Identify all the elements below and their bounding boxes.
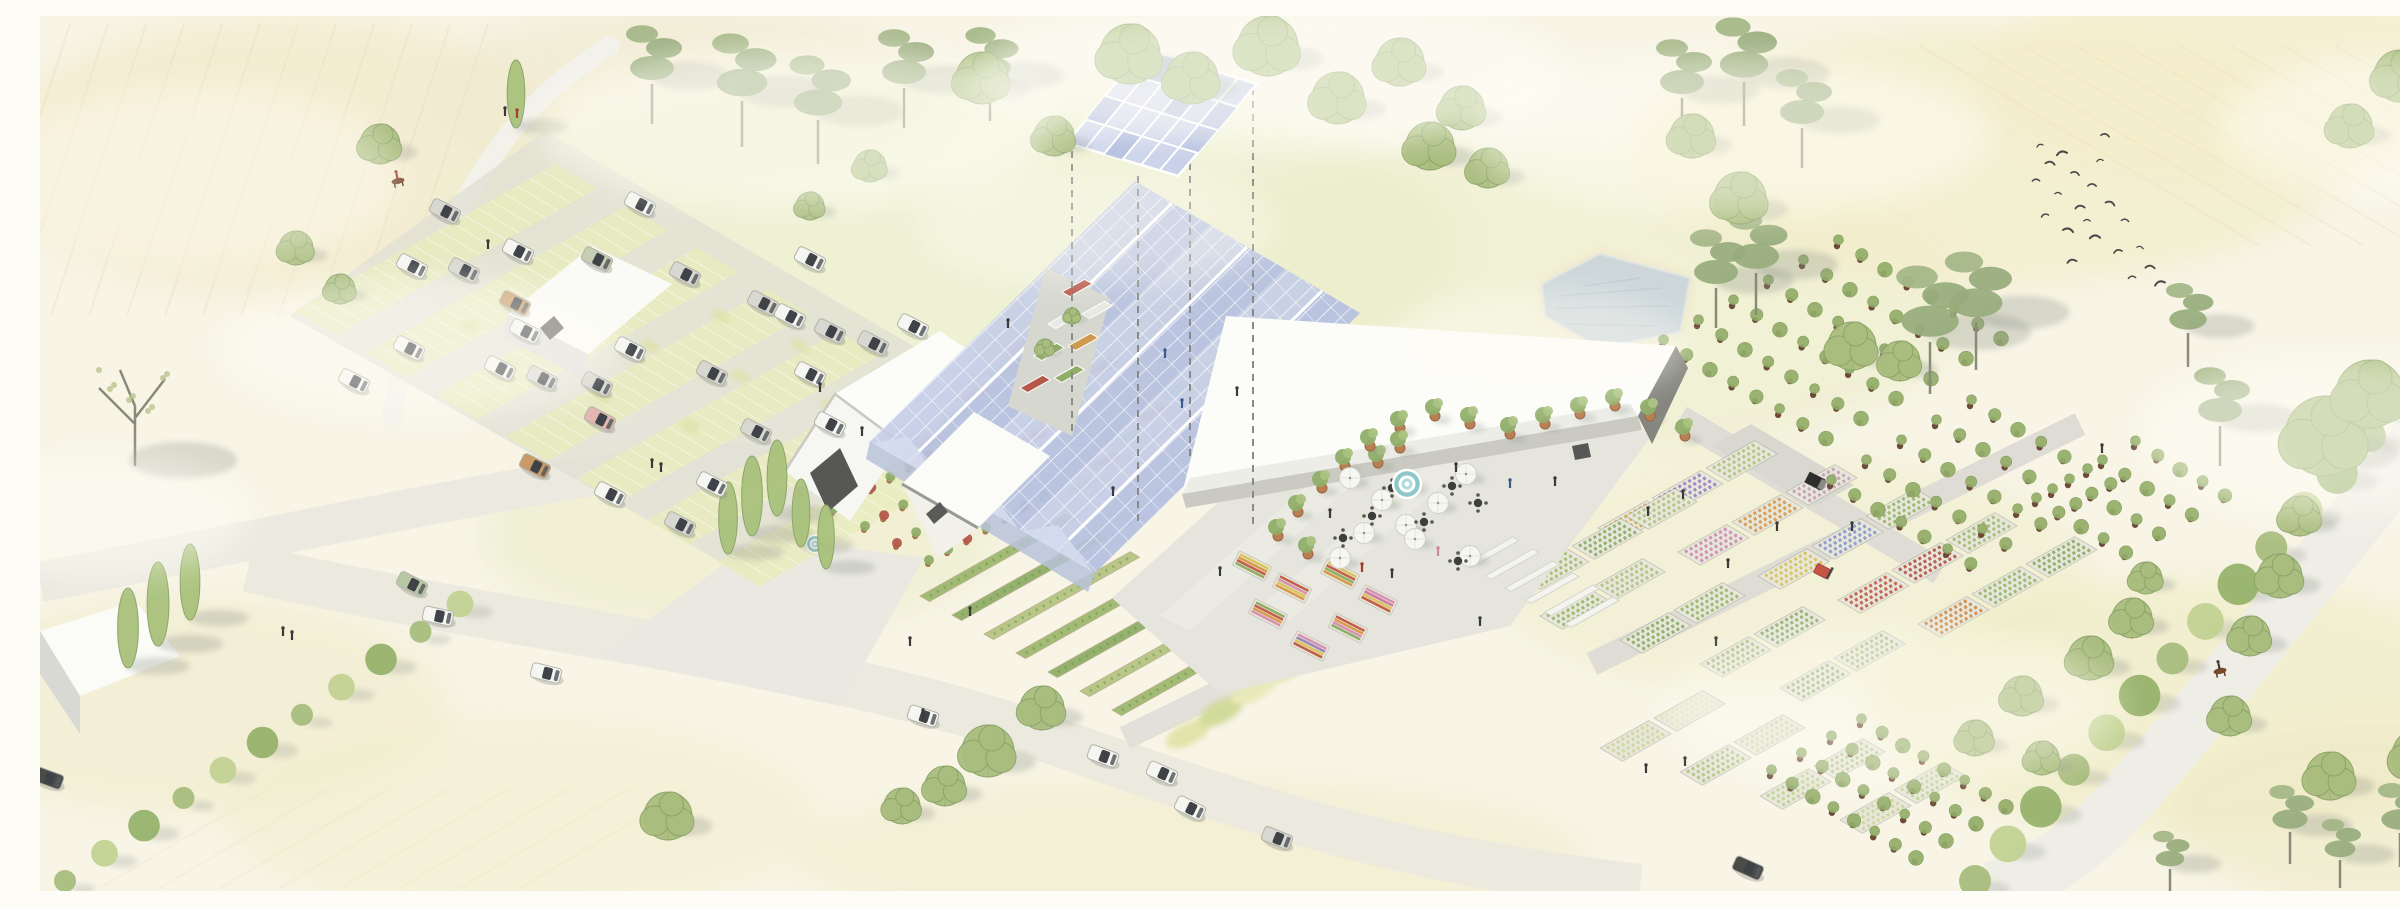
potted-shrub <box>2011 422 2026 437</box>
pine-foliage <box>2272 810 2307 829</box>
potted-shrub <box>1909 850 1924 865</box>
person-head <box>1683 756 1686 759</box>
hedge-bush <box>291 704 313 726</box>
deciduous-tree <box>1969 720 1987 738</box>
cafe-chair <box>1382 486 1386 490</box>
potted-shrub <box>1890 310 1904 324</box>
pine-foliage <box>2269 785 2295 799</box>
potted-shrub <box>2098 455 2108 465</box>
potted-shrub <box>1939 833 1954 848</box>
poplar-tree <box>818 505 835 569</box>
potted-shrub <box>2140 481 2155 496</box>
potted-shrub <box>1949 804 1961 816</box>
planter-tree-foliage <box>1613 388 1623 398</box>
potted-shrub <box>1876 726 1888 738</box>
pine-foliage <box>878 29 910 47</box>
deciduous-tree <box>1034 686 1056 708</box>
potted-shrub <box>2070 497 2082 509</box>
potted-shrub <box>1827 731 1837 741</box>
person-head <box>1553 476 1556 479</box>
potted-plant <box>898 499 908 509</box>
potted-shrub <box>2107 500 2122 515</box>
parasol-pole <box>1414 538 1417 541</box>
deciduous-tree <box>1684 114 1706 136</box>
potted-shrub <box>1969 816 1984 831</box>
potted-shrub <box>1856 249 1868 261</box>
east-hall-door <box>1572 443 1591 460</box>
hedge-bush <box>410 621 432 643</box>
parasol-pole <box>1465 473 1468 476</box>
potted-shrub <box>1918 530 1932 544</box>
potted-shrub <box>1871 502 1886 517</box>
cafe-table <box>1368 512 1376 520</box>
deciduous-tree <box>373 124 393 144</box>
potted-shrub <box>1786 289 1798 301</box>
potted-shrub <box>1834 235 1844 245</box>
potted-shrub <box>1965 557 1977 569</box>
cafe-chair <box>1370 522 1374 526</box>
potted-shrub <box>1846 743 1858 755</box>
pine-foliage <box>717 69 768 97</box>
cafe-chair <box>1476 509 1480 513</box>
potted-shrub <box>2152 527 2166 541</box>
deciduous-tree <box>2322 752 2346 776</box>
pine-foliage <box>2156 851 2185 867</box>
planter-tree-foliage <box>1368 428 1378 438</box>
cafe-chair <box>1468 501 1472 505</box>
potted-shrub <box>1966 476 1977 487</box>
potted-shrub <box>1889 838 1901 850</box>
deciduous-tree <box>1731 172 1757 198</box>
parasol <box>1330 548 1351 569</box>
cafe-chair <box>1414 520 1418 524</box>
planter-tree-foliage <box>1683 418 1693 428</box>
cafe-chair <box>1458 484 1462 488</box>
cafe-chair <box>1430 520 1434 524</box>
bare-tree-leaves <box>126 397 132 403</box>
hedge-bush <box>328 674 355 701</box>
potted-shrub <box>1703 362 1718 377</box>
potted-shrub <box>1827 475 1837 485</box>
potted-shrub <box>2152 449 2164 461</box>
person-head <box>1646 506 1649 509</box>
person-head <box>1850 521 1853 524</box>
person-head <box>1681 489 1684 492</box>
planter-tree-foliage <box>1468 406 1478 416</box>
deciduous-tree <box>2015 676 2035 696</box>
deciduous-tree <box>1422 122 1446 146</box>
deciduous-tree <box>864 150 880 166</box>
parasol-pole <box>1349 477 1352 480</box>
hedge-bush <box>2187 603 2224 640</box>
hedge-bush <box>2218 564 2260 606</box>
bare-tree-leaves <box>96 367 102 373</box>
pine-foliage <box>1896 266 1938 289</box>
pine-foliage <box>2325 840 2356 857</box>
parasol <box>1456 464 1477 485</box>
cafe-chair <box>1442 484 1446 488</box>
deciduous-tree <box>1893 341 1913 361</box>
potted-shrub <box>1728 376 1739 387</box>
tree-shadow <box>726 544 784 560</box>
potted-shrub <box>1750 390 1764 404</box>
potted-shrub <box>1868 296 1879 307</box>
deciduous-tree <box>1042 339 1051 348</box>
person-head <box>650 458 653 461</box>
pine-foliage <box>794 89 842 115</box>
cafe-table <box>1448 482 1456 490</box>
pine-foliage <box>1733 244 1779 269</box>
potted-shrub <box>2000 537 2012 549</box>
poplar-tree <box>147 562 169 646</box>
potted-shrub <box>2098 533 2109 544</box>
cafe-chair <box>1456 551 1460 555</box>
potted-plant <box>924 555 934 565</box>
potted-plant <box>892 538 902 548</box>
potted-shrub <box>1900 809 1910 819</box>
parasol <box>1428 493 1449 514</box>
potted-shrub <box>2173 462 2188 477</box>
pine-foliage <box>626 25 658 43</box>
cafe-chair <box>1422 528 1426 532</box>
cafe-chair <box>1450 492 1454 496</box>
planter-tree-foliage <box>1296 494 1306 504</box>
potted-plant <box>911 527 921 537</box>
potted-shrub <box>1888 768 1899 779</box>
potted-shrub <box>2131 436 2141 446</box>
potted-shrub <box>1907 780 1921 794</box>
cafe-chair <box>1349 536 1353 540</box>
tree-shadow <box>514 119 568 134</box>
cafe-chair <box>1484 501 1488 505</box>
pine-foliage <box>789 55 824 74</box>
deciduous-tree <box>660 792 684 816</box>
potted-shrub <box>1659 335 1669 345</box>
hedge-bush <box>210 757 237 784</box>
potted-shrub <box>1805 789 1820 804</box>
deciduous-tree <box>290 231 307 248</box>
potted-shrub <box>1895 738 1910 753</box>
hedge-bush <box>91 840 118 867</box>
potted-shrub <box>2083 464 2093 474</box>
potted-shrub <box>2218 489 2232 503</box>
potted-shrub <box>1877 797 1891 811</box>
horse-leg <box>395 184 396 188</box>
potted-shrub <box>2086 487 2098 499</box>
hedge-bush <box>173 787 195 809</box>
potted-shrub <box>1865 755 1880 770</box>
pine-foliage <box>1656 39 1688 57</box>
cafe-chair <box>1464 559 1468 563</box>
pine-foliage <box>1780 100 1824 124</box>
potted-shrub <box>1978 524 1988 534</box>
planter-tree-foliage <box>1343 448 1353 458</box>
potted-plant <box>879 510 889 520</box>
deciduous-tree <box>2140 562 2156 578</box>
person-head <box>1328 508 1331 511</box>
cafe-chair <box>1362 514 1366 518</box>
deciduous-tree <box>1454 86 1476 108</box>
person-head <box>818 382 821 385</box>
person-head <box>1235 386 1238 389</box>
planter-tree-foliage <box>1433 398 1443 408</box>
person-head <box>1180 398 1183 401</box>
potted-shrub <box>1889 391 1904 406</box>
deciduous-tree <box>1258 16 1288 46</box>
potted-shrub <box>2131 514 2142 525</box>
bare-tree-leaves <box>145 408 151 414</box>
potted-shrub <box>1976 442 1991 457</box>
cafe-chair <box>1422 512 1426 516</box>
pine-foliage <box>1945 251 1983 272</box>
cafe-table <box>1420 518 1428 526</box>
potted-shrub <box>1808 302 1823 317</box>
potted-shrub <box>2065 474 2075 484</box>
planter-tree-foliage <box>1543 406 1553 416</box>
poplar-tree <box>792 479 810 547</box>
potted-shrub <box>1878 262 1893 277</box>
parasol <box>1405 529 1426 550</box>
cafe-table <box>1339 534 1347 542</box>
potted-shrub <box>1919 449 1931 461</box>
potted-shrub <box>2023 470 2037 484</box>
potted-shrub <box>1729 295 1739 305</box>
potted-shrub <box>1797 417 1809 429</box>
potted-shrub <box>1930 792 1940 802</box>
potted-shrub <box>1816 760 1828 772</box>
deciduous-tree <box>2036 741 2053 758</box>
deciduous-tree <box>896 788 914 806</box>
cafe-chair <box>1390 494 1394 498</box>
pine-foliage <box>1720 51 1768 77</box>
parasol-pole <box>1363 532 1366 535</box>
pine-foliage <box>882 60 926 84</box>
potted-shrub <box>1862 455 1872 465</box>
planter-tree-foliage <box>1508 416 1518 426</box>
potted-shrub <box>1694 315 1704 325</box>
deciduous-tree <box>2125 598 2145 618</box>
planter-tree-foliage <box>1306 536 1316 546</box>
potted-shrub <box>2197 476 2208 487</box>
planter-tree-foliage <box>1276 518 1286 528</box>
person-head <box>1478 616 1481 619</box>
deciduous-tree <box>2243 616 2263 636</box>
person-head <box>1390 568 1393 571</box>
potted-shrub <box>2053 506 2065 518</box>
person-head <box>1726 558 1729 561</box>
person-head <box>486 239 489 242</box>
rider-figure <box>2218 663 2219 669</box>
pine-foliage <box>1660 70 1704 94</box>
bare-tree-leaves <box>160 375 166 381</box>
cafe-chair <box>1333 536 1337 540</box>
person-head <box>908 636 911 639</box>
potted-shrub <box>1897 435 1907 445</box>
potted-shrub <box>2036 436 2047 447</box>
cafe-table <box>1454 557 1462 565</box>
hedge-bush <box>365 644 397 676</box>
deciduous-tree <box>1183 52 1209 78</box>
pine-foliage <box>1715 17 1750 36</box>
deciduous-tree <box>2293 496 2313 516</box>
potted-shrub <box>2105 477 2117 489</box>
potted-shrub <box>1775 404 1785 414</box>
person-head <box>503 106 506 109</box>
poplar-tree <box>767 440 787 516</box>
potted-shrub <box>1960 775 1970 785</box>
pine-foliage <box>712 33 749 53</box>
potted-shrub <box>1819 431 1834 446</box>
person-head <box>1360 562 1363 565</box>
potted-shrub <box>1773 322 1788 337</box>
person-head <box>1508 478 1511 481</box>
potted-shrub <box>1786 777 1798 789</box>
pine-foliage <box>1776 69 1808 87</box>
cafe-chair <box>1450 476 1454 480</box>
potted-shrub <box>2035 517 2047 529</box>
potted-shrub <box>1810 384 1820 394</box>
potted-shrub <box>1999 799 2014 814</box>
potted-shrub <box>2185 508 2199 522</box>
potted-shrub <box>1832 397 1844 409</box>
parasol <box>1340 468 1361 489</box>
bare-tree-leaves <box>107 386 113 392</box>
cafe-chair <box>1341 544 1345 548</box>
potted-shrub <box>2119 546 2133 560</box>
person-head <box>1163 348 1166 351</box>
potted-shrub <box>1858 785 1869 796</box>
potted-shrub <box>1849 489 1861 501</box>
person-head <box>1454 462 1457 465</box>
cafe-chair <box>1378 514 1382 518</box>
person-head <box>1436 546 1439 549</box>
pine-foliage <box>965 27 995 44</box>
poplar-tree <box>742 456 763 536</box>
parasol <box>1460 546 1481 567</box>
pine-foliage <box>2169 309 2206 329</box>
tree-shadow <box>129 442 237 478</box>
potted-shrub <box>2013 504 2023 514</box>
potted-shrub <box>1870 826 1880 836</box>
hedge-bush <box>2088 714 2125 751</box>
potted-shrub <box>1843 282 1858 297</box>
parasol-pole <box>1405 524 1408 527</box>
deciduous-tree <box>2223 696 2243 716</box>
potted-shrub <box>2001 456 2012 467</box>
person-head <box>659 462 662 465</box>
potted-shrub <box>1785 370 1799 384</box>
deciduous-tree <box>805 192 819 206</box>
person-head <box>1714 636 1717 639</box>
potted-shrub <box>1932 415 1942 425</box>
potted-shrub <box>1867 377 1879 389</box>
potted-shrub <box>1847 814 1861 828</box>
person-head <box>1111 486 1114 489</box>
potted-plant <box>860 521 870 531</box>
potted-shrub <box>1854 411 1869 426</box>
horse-leg <box>402 182 403 186</box>
parasol-pole <box>1437 502 1440 505</box>
poplar-tree <box>180 544 200 620</box>
potted-shrub <box>1941 462 1956 477</box>
potted-shrub <box>1906 482 1921 497</box>
rendering-figure: Garden centre campus - aerial rendering … <box>40 16 2400 891</box>
deciduous-tree <box>2082 636 2104 658</box>
rider-figure <box>396 173 397 179</box>
pine-foliage <box>2194 367 2226 385</box>
planter-tree-foliage <box>1398 410 1408 420</box>
potted-shrub <box>1967 395 1977 405</box>
potted-shrub <box>1797 748 1807 758</box>
potted-shrub <box>1959 351 1974 366</box>
person-head <box>1218 566 1221 569</box>
pine-foliage <box>1694 260 1738 284</box>
deciduous-tree <box>1047 116 1067 136</box>
potted-shrub <box>1954 429 1966 441</box>
planter-tree-foliage <box>1648 398 1658 408</box>
person-head <box>2100 443 2103 446</box>
potted-shrub <box>1943 544 1953 554</box>
pine-foliage <box>630 56 674 80</box>
deciduous-tree <box>1120 24 1150 54</box>
cafe-chair <box>1448 559 1452 563</box>
tree-shadow <box>126 657 190 675</box>
hedge-bush <box>54 870 76 891</box>
planter-tree-foliage <box>1578 396 1588 406</box>
person-head <box>921 708 924 711</box>
potted-shrub <box>1884 469 1896 481</box>
person-head <box>1644 763 1647 766</box>
deciduous-tree <box>2342 104 2364 126</box>
person-head <box>290 630 293 633</box>
potted-shrub <box>1767 765 1777 775</box>
potted-shrub <box>1979 787 1991 799</box>
pine-foliage <box>1950 288 2003 317</box>
potted-shrub <box>2032 493 2042 503</box>
potted-shrub <box>1738 342 1753 357</box>
deciduous-tree <box>2272 554 2294 576</box>
fountain-top-tier <box>1405 482 1410 487</box>
potted-shrub <box>1988 490 2002 504</box>
site-rendering-canvas: Garden centre campus - aerial rendering … <box>40 16 2400 891</box>
parasol-pole <box>1469 555 1472 558</box>
tree-shadow <box>188 610 249 627</box>
potted-shrub <box>2164 495 2175 506</box>
potted-shrub <box>1918 751 1929 762</box>
parasol <box>1372 490 1393 511</box>
parasol-pole <box>1339 557 1342 560</box>
pine-foliage <box>2153 831 2174 842</box>
deciduous-tree <box>1481 148 1501 168</box>
person-head <box>515 108 518 111</box>
deciduous-tree <box>1392 38 1416 62</box>
potted-shrub <box>2058 450 2072 464</box>
potted-shrub <box>1716 329 1728 341</box>
deciduous-tree <box>938 766 958 786</box>
planter-tree-foliage <box>1398 430 1408 440</box>
cafe-chair <box>1341 528 1345 532</box>
potted-shrub <box>2048 484 2058 494</box>
potted-shrub <box>2119 468 2131 480</box>
hedge-bush <box>128 810 160 842</box>
potted-shrub <box>1937 763 1951 777</box>
deciduous-tree <box>1329 72 1355 98</box>
deciduous-tree <box>2358 360 2392 394</box>
pine-foliage <box>2322 819 2344 831</box>
potted-shrub <box>1919 821 1931 833</box>
potted-shrub <box>1835 772 1850 787</box>
hedge-bush <box>2020 786 2062 828</box>
